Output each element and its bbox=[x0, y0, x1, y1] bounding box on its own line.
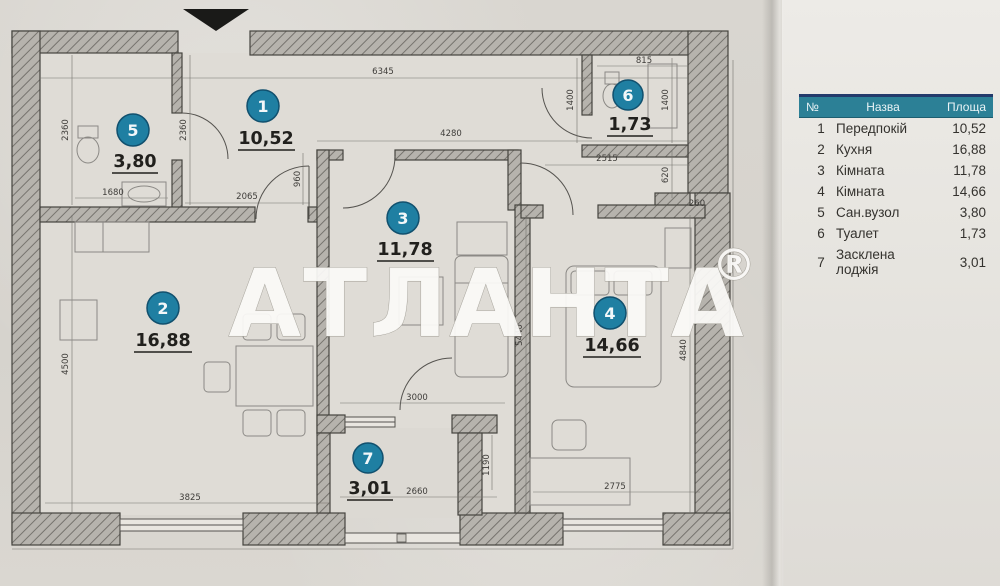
wall-loggia-top-left bbox=[317, 415, 345, 433]
wall-room3-top bbox=[395, 150, 518, 160]
legend-room-name: Передпокій bbox=[836, 121, 930, 136]
legend-header-name: Назва bbox=[836, 100, 930, 114]
wall-top-main bbox=[250, 31, 690, 55]
dim-label: 260 bbox=[689, 199, 705, 209]
dim-label: 2360 bbox=[179, 119, 189, 141]
legend-room-name: Сан.вузол bbox=[836, 205, 930, 220]
watermark-registered-icon: ® bbox=[712, 240, 756, 291]
wall-toilet-left bbox=[582, 55, 592, 115]
wall-loggia-top-right bbox=[452, 415, 497, 433]
legend-row: 1 Передпокій 10,52 bbox=[799, 118, 993, 139]
legend-row: 5 Сан.вузол 3,80 bbox=[799, 202, 993, 223]
wall-bottom-corner bbox=[663, 513, 730, 545]
wall-right-upper bbox=[688, 31, 728, 193]
legend-header-num: № bbox=[806, 100, 836, 114]
legend-room-area: 14,66 bbox=[930, 184, 986, 199]
legend-room-area: 10,52 bbox=[930, 121, 986, 136]
wall-bath-hall-lower bbox=[172, 160, 182, 210]
dim-label: 815 bbox=[636, 56, 652, 66]
dim-label: 2360 bbox=[61, 119, 71, 141]
legend-room-area: 3,01 bbox=[930, 255, 986, 270]
dim-label: 2065 bbox=[236, 192, 258, 202]
room-number: 2 bbox=[157, 299, 168, 318]
room-area: 1,73 bbox=[608, 115, 651, 135]
room-number: 6 bbox=[622, 86, 633, 105]
wall-loggia-right bbox=[458, 433, 482, 515]
wall-room4-top-left bbox=[521, 205, 543, 218]
room-area: 14,66 bbox=[584, 336, 639, 356]
room-area: 3,01 bbox=[348, 479, 391, 499]
loggia-floor bbox=[330, 428, 460, 518]
room-number: 1 bbox=[257, 97, 268, 116]
dim-label: 960 bbox=[293, 171, 303, 187]
wall-bottom-left bbox=[12, 513, 120, 545]
wall-left bbox=[12, 31, 40, 543]
wall-bottom-mid bbox=[460, 513, 563, 545]
dim-label: 6345 bbox=[372, 67, 394, 77]
dim-label: 1400 bbox=[661, 89, 671, 111]
dim-label: 3825 bbox=[179, 493, 201, 503]
legend-room-num: 5 bbox=[806, 205, 836, 220]
dim-label: 1190 bbox=[482, 454, 492, 476]
room-number: 5 bbox=[127, 121, 138, 140]
legend-room-num: 6 bbox=[806, 226, 836, 241]
dim-label: 2660 bbox=[406, 487, 428, 497]
room-number: 4 bbox=[604, 304, 615, 323]
legend-row: 6 Туалет 1,73 bbox=[799, 223, 993, 244]
legend-room-area: 3,80 bbox=[930, 205, 986, 220]
room-number: 3 bbox=[397, 209, 408, 228]
legend-room-num: 2 bbox=[806, 142, 836, 157]
wall-bath-hall-upper bbox=[172, 53, 182, 113]
legend-room-name: Засклена лоджія bbox=[836, 247, 930, 277]
room-legend-table: № Назва Площа 1 Передпокій 10,52 2 Кухня… bbox=[799, 94, 993, 280]
legend-row: 7 Засклена лоджія 3,01 bbox=[799, 244, 993, 280]
legend-room-name: Кімната bbox=[836, 184, 930, 199]
dim-label: 4500 bbox=[61, 353, 71, 375]
dim-label: 2515 bbox=[596, 154, 618, 164]
wall-room3-right bbox=[508, 150, 521, 210]
legend-room-num: 4 bbox=[806, 184, 836, 199]
entrance-arrow-icon bbox=[183, 9, 249, 31]
legend-room-num: 3 bbox=[806, 163, 836, 178]
floor-plan-drawing: 6345 4280 815 2515 1680 2065 3825 3000 2… bbox=[0, 0, 1000, 586]
legend-header-area: Площа bbox=[930, 100, 986, 114]
wall-loggia-left bbox=[317, 433, 330, 513]
legend-row: 4 Кімната 14,66 bbox=[799, 181, 993, 202]
dim-label: 3000 bbox=[406, 393, 428, 403]
dim-label: 2775 bbox=[604, 482, 626, 492]
scanned-floor-plan-page: 6345 4280 815 2515 1680 2065 3825 3000 2… bbox=[0, 0, 1000, 586]
dim-label: 4280 bbox=[440, 129, 462, 139]
legend-room-area: 1,73 bbox=[930, 226, 986, 241]
dim-label: 620 bbox=[661, 167, 671, 183]
legend-room-name: Кімната bbox=[836, 163, 930, 178]
room-area: 11,78 bbox=[377, 240, 432, 260]
wall-bottom-kitchen bbox=[243, 513, 345, 545]
dim-label: 1400 bbox=[566, 89, 576, 111]
dim-label: 1680 bbox=[102, 188, 124, 198]
room-area: 16,88 bbox=[135, 331, 190, 351]
legend-header-row: № Назва Площа bbox=[799, 94, 993, 118]
legend-room-num: 1 bbox=[806, 121, 836, 136]
legend-room-area: 11,78 bbox=[930, 163, 986, 178]
legend-room-name: Туалет bbox=[836, 226, 930, 241]
legend-room-area: 16,88 bbox=[930, 142, 986, 157]
legend-room-name: Кухня bbox=[836, 142, 930, 157]
legend-row: 2 Кухня 16,88 bbox=[799, 139, 993, 160]
room-area: 10,52 bbox=[238, 129, 293, 149]
loggia-mullion bbox=[397, 534, 406, 542]
room-number: 7 bbox=[362, 449, 373, 468]
room-area: 3,80 bbox=[113, 152, 156, 172]
legend-row: 3 Кімната 11,78 bbox=[799, 160, 993, 181]
watermark-text: АТЛАНТА bbox=[228, 250, 745, 359]
legend-room-num: 7 bbox=[806, 255, 836, 270]
